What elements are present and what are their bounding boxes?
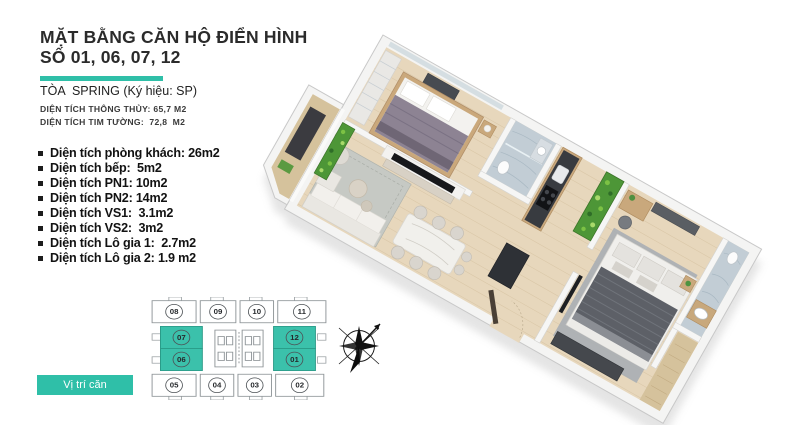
room-area-text: Diện tích PN1: 10m2 xyxy=(50,176,167,190)
room-area-item: Diện tích PN2: 14m2 xyxy=(38,191,220,206)
location-label: Vị trí căn xyxy=(63,379,106,391)
room-area-item: Diện tích phòng khách: 26m2 xyxy=(38,146,220,161)
room-area-item: Diện tích Lô gia 1: 2.7m2 xyxy=(38,236,220,251)
room-area-text: Diện tích phòng khách: 26m2 xyxy=(50,146,220,160)
bullet-square xyxy=(38,151,43,156)
room-area-item: Diện tích VS1: 3.1m2 xyxy=(38,206,220,221)
bullet-square xyxy=(38,241,43,246)
room-area-item: Diện tích VS2: 3m2 xyxy=(38,221,220,236)
room-area-text: Diện tích Lô gia 2: 1.9 m2 xyxy=(50,251,196,265)
room-area-text: Diện tích bếp: 5m2 xyxy=(50,161,162,175)
room-area-text: Diện tích PN2: 14m2 xyxy=(50,191,167,205)
unit-number: 05 xyxy=(170,381,179,389)
room-area-item: Diện tích Lô gia 2: 1.9 m2 xyxy=(38,251,220,266)
bullet-square xyxy=(38,166,43,171)
tower-name: TÒA SPRING (Ký hiệu: SP) xyxy=(40,84,197,98)
bullet-square xyxy=(38,256,43,261)
unit-number: 04 xyxy=(213,381,223,389)
page: MẶT BẰNG CĂN HỘ ĐIỂN HÌNH SỐ 01, 06, 07,… xyxy=(0,0,800,425)
room-area-text: Diện tích Lô gia 1: 2.7m2 xyxy=(50,236,196,250)
room-area-list: Diện tích phòng khách: 26m2 Diện tích bế… xyxy=(38,146,220,266)
room-area-text: Diện tích VS1: 3.1m2 xyxy=(50,206,173,220)
location-badge: Vị trí căn xyxy=(37,375,133,395)
unit-number: 09 xyxy=(214,308,223,316)
room-area-text: Diện tích VS2: 3m2 xyxy=(50,221,163,235)
title-underline xyxy=(40,76,163,81)
unit-number: 07 xyxy=(177,333,186,341)
room-area-item: Diện tích bếp: 5m2 xyxy=(38,161,220,176)
bullet-square xyxy=(38,196,43,201)
unit-number: 06 xyxy=(177,355,186,363)
gross-area: DIỆN TÍCH TIM TƯỜNG: 72,8 M2 xyxy=(40,117,185,127)
carpet-area: DIỆN TÍCH THÔNG THỦY: 65,7 M2 xyxy=(40,104,187,114)
floor-plan-3d xyxy=(235,5,800,425)
unit-number: 08 xyxy=(170,308,179,316)
bullet-square xyxy=(38,226,43,231)
bullet-square xyxy=(38,181,43,186)
room-area-item: Diện tích PN1: 10m2 xyxy=(38,176,220,191)
bullet-square xyxy=(38,211,43,216)
